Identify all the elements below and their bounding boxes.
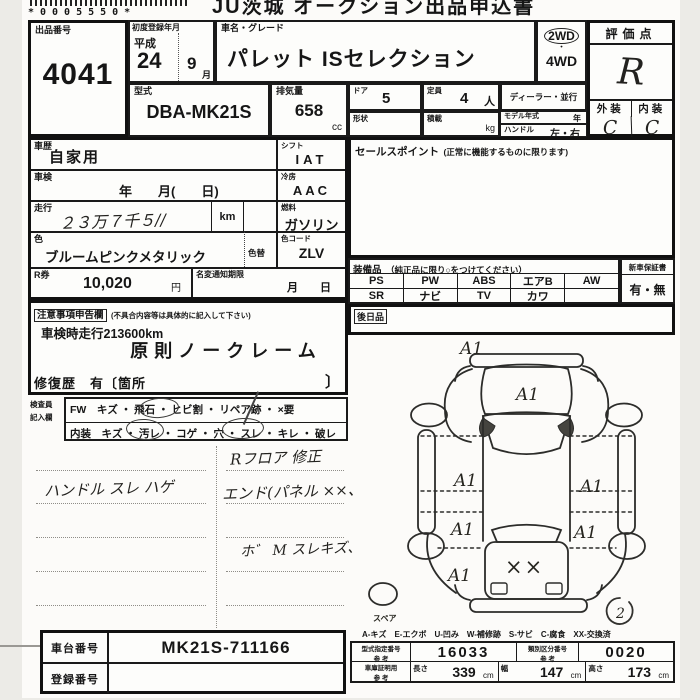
dealer-parallel-box: ディーラー・並行: [500, 83, 587, 111]
mileage-handwritten: ２３万７千５//: [59, 206, 167, 234]
notice-no-claim-line: 原則ノークレーム: [111, 337, 341, 363]
equip-airbag: エアB: [510, 274, 564, 288]
capacity-unit: 人: [484, 93, 495, 109]
yen-unit: 円: [171, 279, 181, 294]
note-line: [226, 470, 344, 471]
lot-number-value: 4041: [31, 58, 125, 92]
spare-label: スペア: [373, 613, 396, 623]
drivetrain-4wd: 4WD: [538, 53, 585, 69]
evaluation-score: R: [589, 43, 674, 101]
damage-mark: A1: [449, 520, 474, 540]
left-side-sill: [418, 430, 435, 534]
equip-sr: SR: [350, 289, 403, 303]
shape-label: 形状: [350, 113, 420, 125]
equip-tv: TV: [457, 289, 511, 303]
warranty-box: 新車保証書 有・無: [620, 258, 675, 304]
first-registration-label: 初度登録年月: [130, 22, 213, 34]
sales-point-title: セールスポイント: [355, 146, 439, 158]
model-code-box: 型式 DBA-MK21S: [128, 83, 270, 137]
color-value: ブルームピンクメタリック: [45, 246, 206, 266]
damage-mark: A1: [458, 339, 483, 359]
recolor-label: 色替: [245, 233, 276, 258]
car-name-label: 車名・グレード: [217, 22, 534, 35]
note-line: [36, 537, 206, 538]
shift-value: IAT: [278, 152, 345, 167]
height-value: 173: [628, 664, 651, 680]
right-side-sill: [618, 430, 635, 534]
front-right-wheel: [606, 404, 642, 427]
load-unit: kg: [485, 123, 495, 133]
km-unit-cell: km: [211, 200, 243, 231]
model-year-box: モデル年式 年: [500, 111, 587, 124]
note-line: [36, 470, 206, 471]
equip-abs: ABS: [457, 274, 511, 288]
barcode: [30, 0, 190, 6]
notice-title: 注意事項申告欄: [34, 309, 107, 322]
handle-label: ハンドル: [504, 126, 534, 134]
handle-box: ハンドル 左・右: [500, 124, 587, 137]
shaken-row: 車検 年 月( 日): [31, 169, 276, 200]
car-name-value: パレット ISセレクション: [217, 35, 534, 73]
displacement-unit: cc: [332, 122, 342, 133]
chassis-number: MK21S-711166: [109, 633, 343, 662]
rear-right-wheel: [609, 533, 645, 559]
damage-mark: A1: [572, 523, 597, 543]
equip-leather: カワ: [510, 289, 564, 303]
note-line: [226, 605, 344, 606]
car-condition-diagram: A1 A1 A1 A1 A1 A1 A1 ×× 2 スペア: [358, 338, 680, 630]
length-value: 339: [452, 664, 475, 680]
repair-history-line: 修復歴 有〔箇所: [34, 373, 146, 392]
recycle-ticket-cell: R券 10,020 円: [31, 267, 191, 297]
equip-empty: [564, 289, 618, 303]
notes-divider: [216, 446, 217, 628]
barcode-digits: *0005550*: [28, 7, 218, 18]
rear-window: [492, 525, 561, 542]
equipment-table: 装備品 （純正品に限り○をつけてください） PS PW ABS エアB AW S…: [348, 258, 620, 304]
shaken-value: 年 月( 日): [119, 181, 219, 200]
height-label: 高さ: [588, 663, 603, 674]
chassis-label: 車台番号: [43, 633, 109, 662]
history-table: 車歴 自家用 シフト IAT 車検 年 月( 日) 冷房 AAC 走行 ２３万７…: [28, 137, 348, 300]
month-divider: [178, 33, 179, 81]
left-mirror: [480, 418, 496, 437]
type-number-table: 型式指定番号 参 考 16033 類別区分番号 参 考 0020 車庫証明用 参…: [350, 641, 675, 683]
damage-mark: A1: [578, 477, 603, 497]
note-line: [36, 605, 206, 606]
doors-value: 5: [382, 90, 390, 107]
note-body-scratch: ホ゛ M スレキズ、: [240, 537, 362, 561]
damage-mark: A1: [452, 471, 477, 491]
mileage-empty-cell: [243, 200, 276, 231]
recolor-cell: 色替: [244, 231, 276, 267]
equip-navi: ナビ: [403, 289, 457, 303]
front-right-fender: [581, 369, 608, 442]
displacement-box: 排気量 658 cc: [270, 83, 348, 137]
ac-value: AAC: [278, 183, 345, 198]
length-label: 長さ: [413, 663, 428, 674]
warranty-value: 有・無: [622, 275, 673, 303]
plate-number: [109, 664, 343, 693]
load-box: 積載 kg: [422, 111, 500, 137]
color-code-label: 色コード: [278, 233, 345, 245]
model-code-label: 型式: [130, 85, 268, 98]
right-mirror: [558, 418, 574, 437]
inspector-interior-row: 内装 キズ ・ 汚レ ・ コゲ ・ 穴 ・ スレ ・ キレ ・ 破レ: [66, 423, 346, 446]
windshield: [483, 412, 570, 454]
fuel-label: 燃料: [278, 202, 345, 214]
damage-mark: A1: [446, 566, 471, 586]
first-registration-box: 初度登録年月 平成 24 9 月: [128, 20, 215, 83]
shape-box: 形状: [348, 111, 422, 137]
model-year-label: モデル年式: [504, 113, 539, 120]
lot-number-label: 出品番号: [31, 23, 125, 38]
mileage-row: 走行 ２３万７千５//: [31, 200, 211, 231]
spare-tire: [369, 583, 397, 605]
ac-label: 冷房: [278, 171, 345, 183]
rename-cell: 名変通知期限 月 日: [191, 267, 345, 297]
type-number-value: 16033: [411, 643, 517, 661]
rear-bumper: [470, 599, 587, 612]
note-line: [226, 571, 344, 572]
width-unit: cm: [571, 671, 582, 680]
rename-value: 月 日: [287, 279, 331, 295]
warranty-label: 新車保証書: [622, 260, 673, 275]
front-left-wheel: [411, 404, 447, 427]
inspector-label: 検査員 記入欄: [30, 401, 64, 421]
repair-history-bracket: 〕: [325, 371, 340, 392]
damage-mark: A1: [514, 385, 539, 405]
class-number-label: 類別区分番号: [517, 643, 578, 653]
shift-cell: シフト IAT: [276, 140, 345, 169]
later-items-label: 後日品: [354, 309, 387, 324]
length-unit: cm: [483, 671, 494, 680]
garage-cert-label: 車庫証明用: [352, 662, 410, 672]
sales-point-box: セールスポイント (正常に機能するものに限ります): [348, 137, 675, 258]
type-number-label: 型式指定番号: [352, 643, 410, 653]
evaluation-title: 評価点: [590, 23, 672, 45]
sheet-title: JU茨城 オークション出品申込書: [212, 0, 632, 19]
equip-aw: AW: [564, 274, 618, 288]
car-name-box: 車名・グレード パレット ISセレクション: [215, 20, 536, 83]
color-label: 色: [31, 233, 244, 246]
rear-left-wheel: [408, 533, 444, 559]
exterior-label: 外装: [590, 101, 632, 117]
notice-subtitle: (不具合内容等は具体的に記入して下さい): [111, 311, 251, 320]
capacity-box: 定員 4 人: [422, 83, 500, 111]
equip-pw: PW: [403, 274, 457, 288]
drivetrain-box: 2WD ・ 4WD: [536, 20, 587, 83]
note-rfloor-repair: Rフロア 修正: [230, 445, 322, 469]
note-line: [36, 571, 206, 572]
class-number-value: 0020: [579, 643, 673, 661]
model-code-value: DBA-MK21S: [130, 102, 268, 123]
evaluation-box: 評価点 R 外装 内装 C C: [587, 20, 675, 137]
damage-legend: A-キズ E-エクボ U-凹み W-補修跡 S-サビ C-腐食 XX-交換済: [362, 629, 678, 640]
auction-sheet-page: *0005550* JU茨城 オークション出品申込書 出品番号 4041 初度登…: [0, 0, 700, 700]
color-code-value: ZLV: [278, 245, 345, 261]
recycle-ticket-value: 10,020: [83, 275, 132, 293]
doors-box: ドア 5: [348, 83, 422, 111]
color-code-cell: 色コード ZLV: [276, 231, 345, 267]
chassis-table: 車台番号 MK21S-711166 登録番号: [40, 630, 346, 694]
later-items-box: 後日品: [348, 304, 675, 335]
interior-label: 内装: [632, 101, 673, 117]
inspector-fw-row: FW キズ ・ 飛石 ・ ヒビ割 ・ リペア跡 ・ ×要: [66, 399, 346, 423]
inspector-box: FW キズ ・ 飛石 ・ ヒビ割 ・ リペア跡 ・ ×要 内装 キズ ・ 汚レ …: [64, 397, 348, 441]
inspector-label-line2: 記入欄: [30, 414, 64, 422]
circled-2-number: 2: [615, 606, 625, 622]
displacement-label: 排気量: [272, 85, 346, 98]
color-row: 色 ブルームピンクメタリック: [31, 231, 244, 267]
reg-year: 24: [137, 48, 161, 74]
model-year-unit: 年: [573, 113, 581, 124]
height-unit: cm: [658, 671, 669, 680]
shift-label: シフト: [278, 140, 345, 152]
sales-point-note: (正常に機能するものに限ります): [443, 147, 568, 157]
inspector-label-line1: 検査員: [30, 401, 64, 409]
reg-month-unit: 月: [202, 68, 211, 81]
fuel-cell: 燃料 ガソリン: [276, 200, 345, 231]
reg-month: 9: [187, 54, 196, 74]
scan-line-artifact: [0, 645, 40, 647]
front-left-fender: [445, 369, 472, 442]
rear-right-fender: [597, 534, 626, 593]
capacity-value: 4: [460, 90, 468, 107]
ref-label: 参 考: [352, 672, 410, 682]
replaced-mark-xx: ××: [505, 555, 544, 579]
drivetrain-dot: ・: [538, 45, 585, 50]
width-label: 幅: [501, 663, 509, 674]
width-value: 147: [540, 664, 563, 680]
displacement-value: 658: [272, 101, 346, 121]
note-line: [36, 503, 206, 504]
equip-ps: PS: [350, 274, 403, 288]
lot-number-box: 出品番号 4041: [28, 20, 128, 137]
history-value: 自家用: [49, 146, 100, 167]
notice-box: 注意事項申告欄 (不具合内容等は具体的に記入して下さい) 車検時走行213600…: [28, 300, 348, 395]
history-row: 車歴 自家用: [31, 140, 276, 169]
plate-label: 登録番号: [43, 664, 109, 693]
ac-cell: 冷房 AAC: [276, 169, 345, 200]
